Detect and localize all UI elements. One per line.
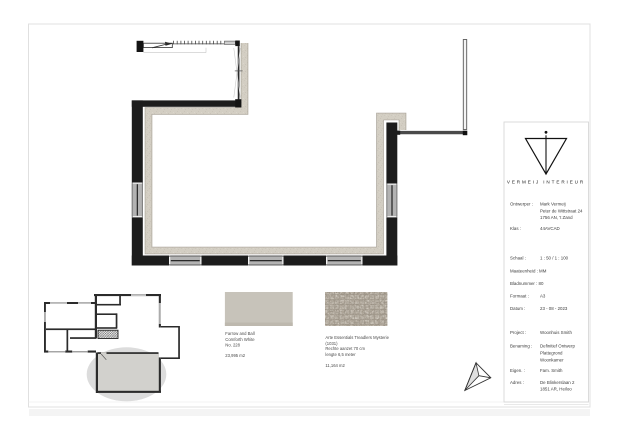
svg-text:Maateenheid : MM: Maateenheid : MM [510, 269, 547, 274]
svg-text:Mark Vermeij: Mark Vermeij [540, 202, 566, 207]
svg-text:Arte Essentials Treadlers Myst: Arte Essentials Treadlers Mysterie [325, 335, 389, 340]
svg-text:Fam. Smith: Fam. Smith [540, 368, 563, 373]
svg-text:1 : 50 / 1 : 100: 1 : 50 / 1 : 100 [540, 256, 569, 261]
svg-text:1851 AR, Heiloo: 1851 AR, Heiloo [540, 387, 572, 392]
svg-text:Schaal :: Schaal : [510, 256, 526, 261]
svg-text:Datum :: Datum : [510, 306, 525, 311]
svg-text:Benaming :: Benaming : [510, 344, 532, 349]
svg-text:1756 AN, 't Zand: 1756 AN, 't Zand [540, 215, 573, 220]
svg-text:Woonhuis Smith: Woonhuis Smith [540, 330, 572, 335]
svg-text:Project :: Project : [510, 330, 526, 335]
svg-text:Farrow and Ball: Farrow and Ball [225, 331, 254, 336]
svg-text:Formaat :: Formaat : [510, 294, 529, 299]
svg-text:A3: A3 [540, 294, 546, 299]
svg-text:Definitief Ontwerp: Definitief Ontwerp [540, 344, 575, 349]
svg-text:11,164 m2: 11,164 m2 [325, 363, 345, 368]
svg-text:Bladnummer : 80: Bladnummer : 80 [510, 281, 544, 286]
svg-text:Eigen. :: Eigen. : [510, 368, 525, 373]
svg-text:lengte 6,5 meter: lengte 6,5 meter [325, 352, 356, 357]
svg-text:De Blinkerslaan 2: De Blinkerslaan 2 [540, 380, 575, 385]
svg-text:Adres :: Adres : [510, 380, 524, 385]
svg-text:Cornforth White: Cornforth White [225, 337, 255, 342]
svg-text:Ontwerper :: Ontwerper : [510, 202, 533, 207]
svg-text:(1031): (1031) [325, 341, 338, 346]
svg-text:44AVCAD: 44AVCAD [540, 226, 560, 231]
svg-text:23 - 08 - 2023: 23 - 08 - 2023 [540, 306, 568, 311]
svg-text:VERMEIJ INTERIEUR: VERMEIJ INTERIEUR [507, 180, 585, 185]
svg-text:Plattegrond: Plattegrond [540, 351, 563, 356]
svg-text:Peter de Wittstraat 24: Peter de Wittstraat 24 [540, 208, 583, 213]
svg-text:No. 228: No. 228 [225, 343, 240, 348]
svg-text:Woonkamer: Woonkamer [540, 358, 564, 363]
svg-text:Rechte aanzet 70 cm: Rechte aanzet 70 cm [325, 346, 365, 351]
svg-text:23,995 m2: 23,995 m2 [225, 353, 245, 358]
svg-text:Klas :: Klas : [510, 226, 521, 231]
